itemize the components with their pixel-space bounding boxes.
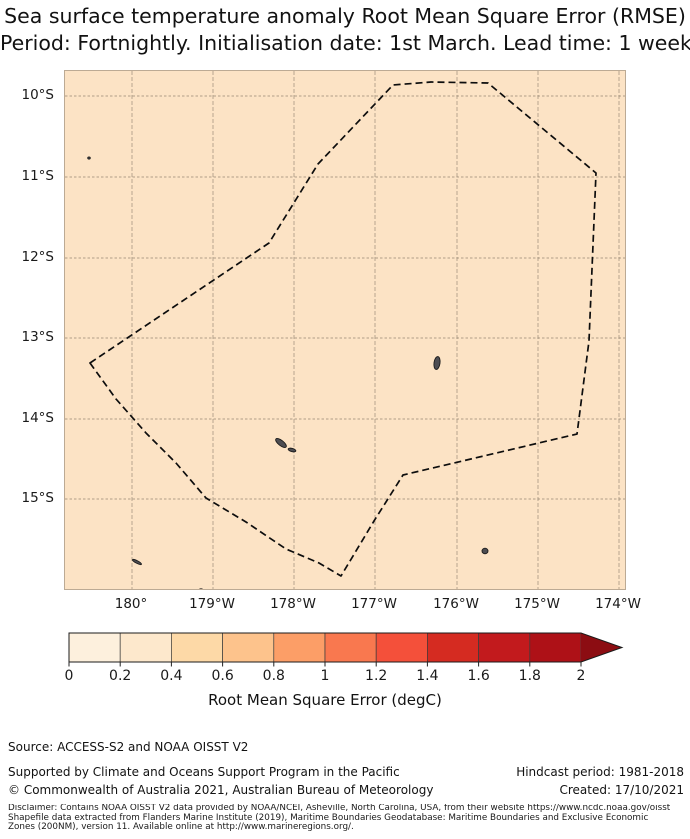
map-canvas [64, 70, 626, 590]
colorbar-label: Root Mean Square Error (degC) [0, 691, 650, 709]
created-date-text: Created: 17/10/2021 [559, 783, 684, 797]
colorbar-segment [274, 633, 325, 662]
lon-tick-label: 175°W [514, 596, 560, 612]
lon-tick-label: 174°W [595, 596, 641, 612]
lat-tick-label: 15°S [22, 490, 55, 506]
colorbar-segment [223, 633, 274, 662]
colorbar-tick-label: 1.6 [467, 668, 489, 684]
colorbar-tick-label: 0.8 [263, 668, 285, 684]
figure-title: Sea surface temperature anomaly Root Mea… [0, 3, 690, 57]
colorbar-tick-label: 1.4 [416, 668, 438, 684]
figure: Sea surface temperature anomaly Root Mea… [0, 0, 690, 839]
copyright-text: © Commonwealth of Australia 2021, Austra… [8, 783, 433, 797]
colorbar-segment [530, 633, 581, 662]
lon-tick-label: 180° [115, 596, 148, 612]
title-line-1: Sea surface temperature anomaly Root Mea… [0, 3, 690, 30]
eez-boundary [90, 82, 596, 576]
map-svg [65, 71, 625, 589]
supported-by-text: Supported by Climate and Oceans Support … [8, 765, 400, 779]
colorbar-segment [479, 633, 530, 662]
lon-tick-label: 178°W [270, 596, 316, 612]
source-text: Source: ACCESS-S2 and NOAA OISST V2 [8, 740, 248, 754]
island [482, 548, 488, 554]
lon-tick-label: 179°W [189, 596, 235, 612]
colorbar-segment [171, 633, 222, 662]
disclaimer-line-3: Zones (200NM), version 11. Available onl… [8, 823, 690, 833]
lat-tick-label: 14°S [22, 410, 55, 426]
colorbar-segment [69, 633, 120, 662]
colorbar-tick-label: 0 [65, 668, 74, 684]
island [88, 157, 91, 159]
lat-tick-label: 12°S [22, 249, 55, 265]
hindcast-period-text: Hindcast period: 1981-2018 [516, 765, 684, 779]
colorbar-tick-label: 1 [321, 668, 330, 684]
colorbar [0, 625, 690, 675]
colorbar-tick-label: 1.2 [365, 668, 387, 684]
colorbar-segment [427, 633, 478, 662]
lat-tick-label: 13°S [22, 329, 55, 345]
colorbar-tick-label: 2 [577, 668, 586, 684]
colorbar-segment [325, 633, 376, 662]
lat-tick-label: 10°S [22, 87, 55, 103]
colorbar-tick-label: 0.6 [211, 668, 233, 684]
lon-tick-label: 177°W [351, 596, 397, 612]
lat-tick-label: 11°S [22, 168, 55, 184]
colorbar-extend-arrow [581, 633, 622, 662]
colorbar-tick-label: 0.2 [109, 668, 131, 684]
island [288, 447, 297, 452]
island [274, 437, 287, 449]
colorbar-tick-label: 0.4 [160, 668, 182, 684]
colorbar-tick-label: 1.8 [519, 668, 541, 684]
lon-tick-label: 176°W [433, 596, 479, 612]
colorbar-segment [376, 633, 427, 662]
colorbar-segment [120, 633, 171, 662]
title-line-2: Period: Fortnightly. Initialisation date… [0, 30, 690, 57]
island [132, 559, 142, 566]
disclaimer-text: Disclaimer: Contains NOAA OISST V2 data … [8, 804, 690, 833]
island [433, 356, 441, 370]
